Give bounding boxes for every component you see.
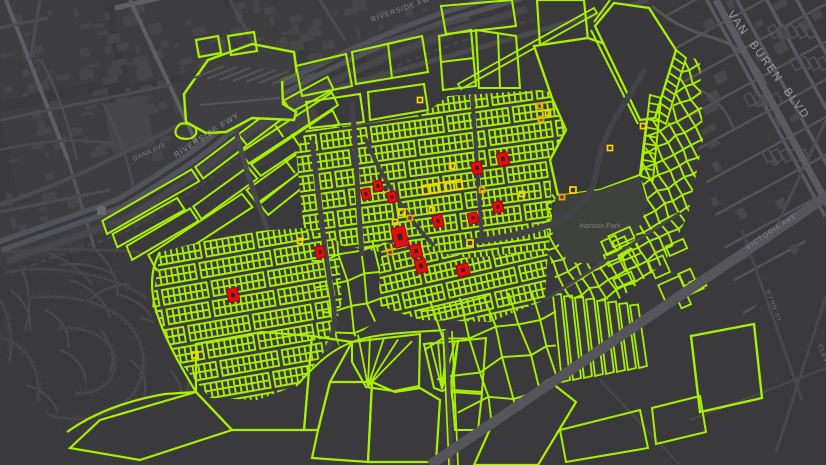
svg-text:Hanson Park: Hanson Park: [580, 223, 621, 230]
